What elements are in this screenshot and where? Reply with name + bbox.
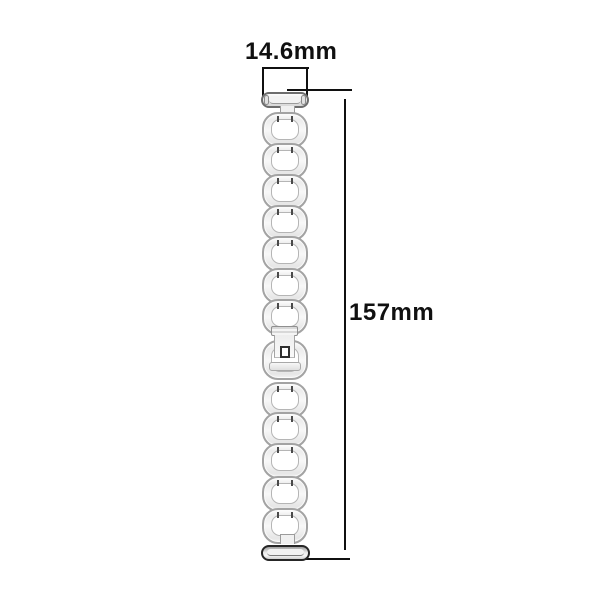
bottom-connector-tab xyxy=(280,534,295,544)
band-link-hole xyxy=(271,119,299,140)
link-pin-right xyxy=(291,272,293,278)
band-link-hole xyxy=(271,419,299,440)
link-pin-left xyxy=(277,116,279,122)
link-pin-left xyxy=(277,147,279,153)
link-pin-right xyxy=(291,512,293,518)
link-pin-right xyxy=(291,147,293,153)
link-pin-right xyxy=(291,209,293,215)
band-link-hole xyxy=(271,450,299,471)
product-dimension-diagram: 14.6mm 157mm xyxy=(0,0,600,600)
band-link-hole xyxy=(271,181,299,202)
band-link-hole xyxy=(271,275,299,296)
link-pin-left xyxy=(277,178,279,184)
link-pin-right xyxy=(291,447,293,453)
bottom-connector xyxy=(261,545,310,561)
link-pin-left xyxy=(277,240,279,246)
link-pin-left xyxy=(277,272,279,278)
link-pin-right xyxy=(291,480,293,486)
link-pin-left xyxy=(277,209,279,215)
band-link xyxy=(262,236,308,272)
link-pin-right xyxy=(291,116,293,122)
link-pin-right xyxy=(291,386,293,392)
band-link xyxy=(262,476,308,512)
link-pin-left xyxy=(277,512,279,518)
link-pin-left xyxy=(277,447,279,453)
link-pin-left xyxy=(277,416,279,422)
band-link-hole xyxy=(271,389,299,410)
bottom-connector-face xyxy=(267,549,304,556)
top-connector-face xyxy=(269,96,301,104)
link-pin-right xyxy=(291,416,293,422)
top-connector-right-cap xyxy=(301,95,306,105)
link-pin-left xyxy=(277,386,279,392)
watch-band xyxy=(0,0,600,600)
link-pin-left xyxy=(277,480,279,486)
clasp-push-button xyxy=(280,346,290,358)
link-pin-left xyxy=(277,303,279,309)
band-link xyxy=(262,443,308,479)
band-link-hole xyxy=(271,306,299,327)
link-pin-right xyxy=(291,303,293,309)
link-pin-right xyxy=(291,178,293,184)
band-link-hole xyxy=(271,243,299,264)
band-link-hole xyxy=(271,483,299,504)
link-pin-right xyxy=(291,240,293,246)
link-crossbar xyxy=(269,362,301,371)
band-link-hole xyxy=(271,515,299,536)
band-link-hole xyxy=(271,150,299,171)
band-link-hole xyxy=(271,212,299,233)
